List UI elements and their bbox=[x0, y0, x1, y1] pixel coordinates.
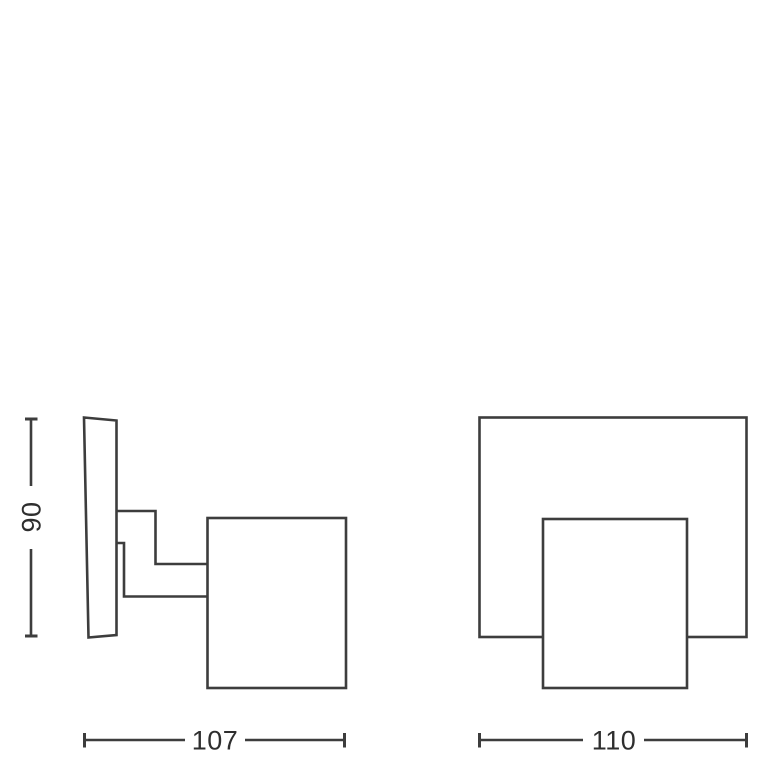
side-view-wall-plate bbox=[84, 418, 117, 638]
side-view-lamp-head bbox=[208, 518, 347, 688]
side-width-dimension: 107 bbox=[85, 726, 345, 756]
height-dimension: 90 bbox=[17, 419, 47, 636]
side-view bbox=[84, 418, 346, 689]
side-view-arm-upper bbox=[116, 511, 208, 564]
side-view-arm-lower bbox=[116, 543, 208, 597]
front-view bbox=[480, 418, 747, 689]
dimension-drawing: 90 107 110 bbox=[0, 0, 770, 770]
drawing-canvas: 90 107 110 bbox=[0, 0, 770, 770]
front-view-lamp-head bbox=[543, 519, 687, 688]
side-width-label: 107 bbox=[192, 726, 239, 756]
height-dimension-label: 90 bbox=[17, 501, 47, 532]
front-width-dimension: 110 bbox=[480, 726, 747, 756]
front-width-label: 110 bbox=[592, 726, 637, 756]
